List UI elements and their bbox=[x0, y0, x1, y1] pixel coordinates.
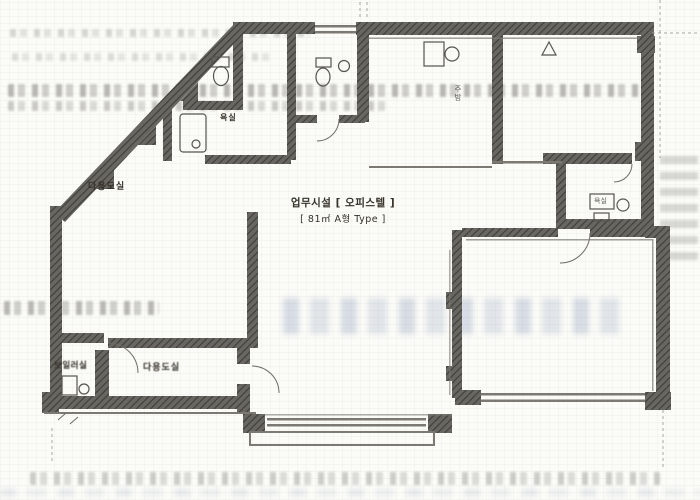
boiler-icon bbox=[79, 384, 89, 394]
door-swing-arc bbox=[560, 233, 590, 263]
wall-bottom-left bbox=[44, 396, 250, 409]
door-swing-arc bbox=[614, 164, 632, 182]
wall-h334 bbox=[50, 333, 104, 343]
window-line bbox=[481, 400, 645, 403]
inner-face-line bbox=[369, 38, 640, 40]
wall-h228 bbox=[462, 228, 558, 237]
wall-corner-bl bbox=[42, 392, 59, 413]
wall-notch bbox=[446, 292, 462, 309]
wall-notch bbox=[635, 142, 654, 161]
room-label-boiler: 보일러실 bbox=[54, 362, 87, 371]
wall-h157 bbox=[205, 155, 291, 164]
room-label-bath-upper: 욕실 bbox=[220, 114, 237, 122]
unit-subtitle: [ 81㎡ A형 Type ] bbox=[253, 215, 433, 225]
door-layer bbox=[58, 119, 632, 424]
window-line bbox=[481, 393, 645, 396]
wall-h115 bbox=[293, 115, 317, 123]
wall-bath-left bbox=[556, 164, 566, 229]
floor-line bbox=[492, 161, 562, 164]
wall-v287 bbox=[287, 33, 296, 160]
window-layer bbox=[44, 25, 654, 446]
wall-v163 bbox=[163, 99, 172, 161]
window-line bbox=[315, 31, 356, 34]
inner-face-line bbox=[466, 239, 652, 241]
wall-diagonal bbox=[54, 22, 247, 222]
wall-v-kitchen bbox=[492, 33, 503, 164]
scanned-floor-plan-page: 업무시설 [ 오피스텔 ] [ 81㎡ A형 Type ] 다용도실 욕실 주방… bbox=[0, 0, 700, 500]
room-label-bath-right: 욕실 bbox=[594, 198, 607, 205]
inner-face-line bbox=[652, 239, 654, 391]
room-label-kitchen: 주방 bbox=[454, 85, 462, 102]
unit-title: 업무시설 [ 오피스텔 ] bbox=[253, 198, 433, 209]
floor-plan-drawing bbox=[0, 0, 700, 500]
wall-top-right bbox=[356, 22, 654, 35]
window-line bbox=[267, 424, 426, 427]
inner-face-line bbox=[449, 250, 451, 395]
wall-v244 bbox=[237, 384, 250, 412]
warning-triangle-icon bbox=[542, 42, 556, 55]
washbasin-icon bbox=[617, 199, 629, 211]
wall-right-lower bbox=[656, 236, 670, 410]
bay-window-line bbox=[249, 444, 435, 446]
toilet-icon bbox=[214, 67, 229, 86]
wall-corner bbox=[243, 414, 265, 433]
room-label-utility-upper: 다용도실 bbox=[88, 183, 125, 192]
wall-center-left bbox=[247, 212, 258, 348]
toilet-tank-icon bbox=[316, 58, 331, 67]
sink-icon bbox=[424, 42, 444, 66]
stove-icon bbox=[445, 47, 459, 61]
wall-top-left bbox=[233, 22, 315, 34]
wall-left-outer bbox=[50, 206, 62, 408]
washbasin-icon bbox=[339, 61, 350, 72]
wall-v236 bbox=[233, 30, 243, 108]
window-line bbox=[315, 25, 356, 28]
wall-h115 bbox=[339, 115, 365, 123]
wall-h228 bbox=[590, 228, 647, 237]
door-swing-arc bbox=[317, 119, 339, 141]
wall-notch bbox=[446, 366, 462, 381]
bay-window-line bbox=[249, 431, 251, 446]
floor-line bbox=[369, 166, 492, 168]
room-label-utility-lower: 다용도실 bbox=[143, 364, 180, 373]
window-line bbox=[267, 418, 426, 421]
door-swing-arc bbox=[252, 366, 279, 393]
wall-layer bbox=[42, 22, 671, 433]
dimension-tick bbox=[58, 413, 78, 424]
inner-face-line bbox=[262, 414, 452, 416]
bay-window-line bbox=[433, 431, 435, 446]
wall-corner bbox=[428, 414, 452, 433]
bay-window-line bbox=[249, 431, 435, 433]
drain-icon bbox=[192, 140, 200, 148]
floor-line bbox=[44, 412, 256, 414]
wall-v358 bbox=[357, 22, 369, 122]
boiler-icon bbox=[62, 376, 77, 395]
toilet-icon bbox=[316, 68, 330, 86]
wall-h334 bbox=[108, 338, 244, 348]
wall-corner-br bbox=[645, 392, 671, 410]
